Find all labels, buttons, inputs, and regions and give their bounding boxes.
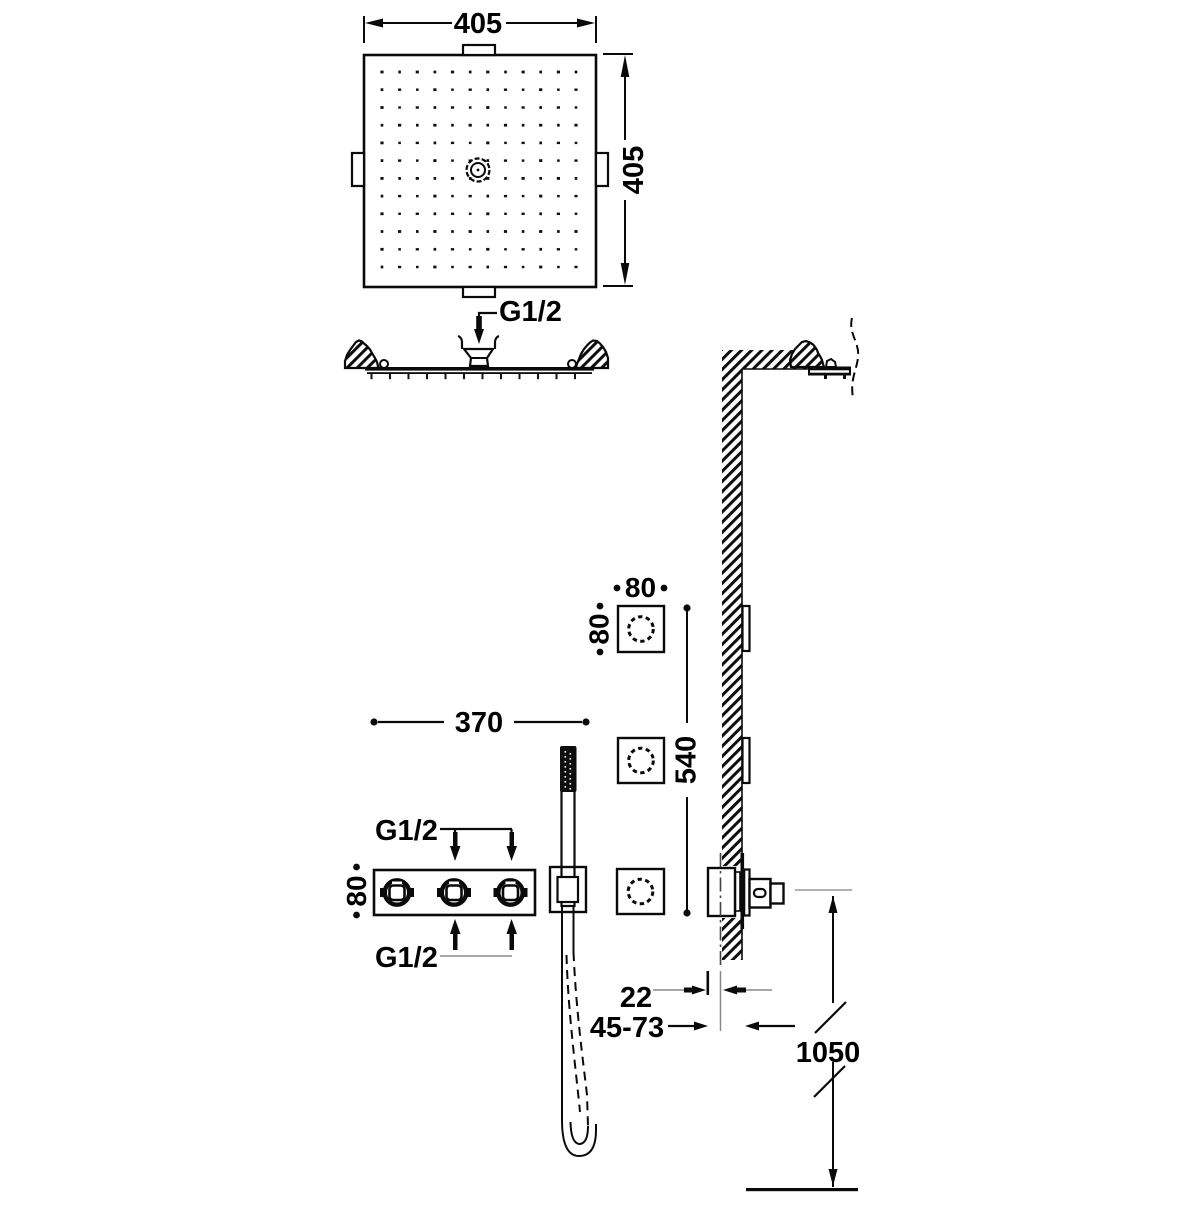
svg-text:45-73: 45-73 <box>590 1012 664 1044</box>
svg-text:370: 370 <box>455 707 503 739</box>
svg-text:G1/2: G1/2 <box>499 296 562 328</box>
svg-text:80: 80 <box>341 875 372 906</box>
svg-text:80: 80 <box>625 572 656 603</box>
svg-text:22: 22 <box>620 982 652 1014</box>
svg-text:G1/2: G1/2 <box>375 942 438 974</box>
svg-text:G1/2: G1/2 <box>375 815 438 847</box>
svg-text:1050: 1050 <box>796 1037 861 1069</box>
svg-text:540: 540 <box>671 736 703 784</box>
svg-text:80: 80 <box>584 613 615 644</box>
svg-text:405: 405 <box>454 8 502 40</box>
svg-text:405: 405 <box>618 146 650 194</box>
